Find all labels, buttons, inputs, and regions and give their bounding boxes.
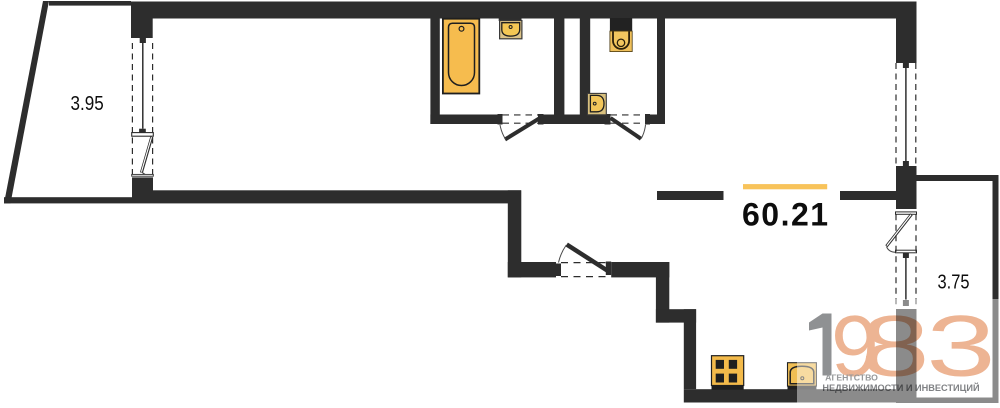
- svg-text:60.21: 60.21: [742, 196, 830, 232]
- svg-text:3.95: 3.95: [71, 93, 104, 115]
- svg-text:АГЕНТСТВО: АГЕНТСТВО: [825, 374, 878, 383]
- svg-text:3.75: 3.75: [938, 271, 970, 293]
- svg-text:3: 3: [926, 299, 995, 395]
- svg-text:НЕДВИЖИМОСТИ И ИНВЕСТИЦИЙ: НЕДВИЖИМОСТИ И ИНВЕСТИЦИЙ: [822, 382, 979, 393]
